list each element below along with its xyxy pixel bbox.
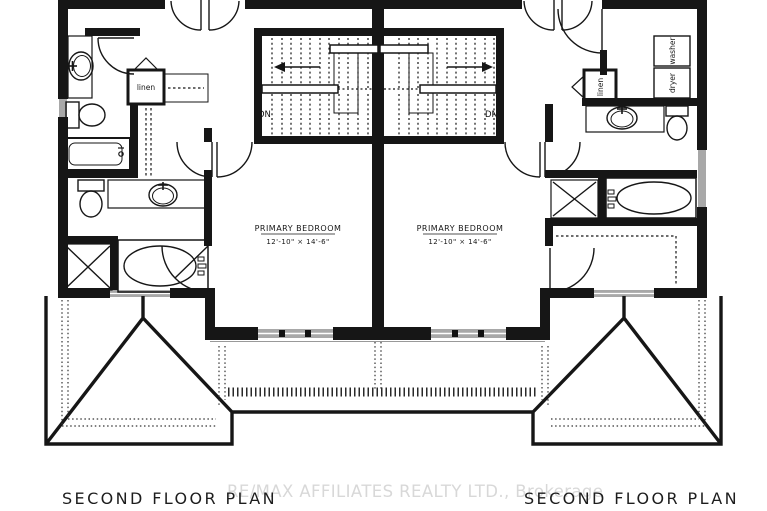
closet-rod-lines (556, 236, 676, 286)
shower-symbol (551, 180, 598, 218)
stairs-left: DN (258, 38, 378, 136)
floor-plan-drawing: DN DN (0, 0, 767, 511)
toilet-symbol (666, 106, 688, 140)
linen-closet (128, 58, 164, 104)
sink-symbol (68, 36, 93, 98)
toilet-symbol (66, 102, 105, 128)
linen-label-right: linen (596, 78, 605, 97)
dryer-label: dryer (668, 72, 677, 93)
bathtub-symbol (64, 138, 130, 170)
room-label-left: PRIMARY BEDROOM (255, 224, 342, 233)
room-dims-left: 12'-10" × 14'-6" (266, 238, 329, 246)
room-label-right: PRIMARY BEDROOM (417, 224, 504, 233)
linen-label-left: linen (137, 83, 156, 92)
toilet-symbol (78, 180, 104, 217)
soaker-tub-symbol (606, 178, 696, 218)
stairs-right: DN (380, 38, 498, 136)
shower-symbol (64, 244, 112, 290)
stairs-down-label-right: DN (485, 110, 498, 120)
plan-title-left: SECOND FLOOR PLAN (62, 489, 277, 508)
soaker-tub-symbol (118, 240, 208, 292)
stairs-down-label-left: DN (258, 110, 271, 120)
washer-label: washer (668, 37, 677, 65)
sink-symbol (108, 180, 206, 208)
sink-symbol (586, 106, 664, 132)
door-arcs (98, 0, 602, 292)
plan-title-right: SECOND FLOOR PLAN (524, 489, 739, 508)
room-dims-right: 12'-10" × 14'-6" (428, 238, 491, 246)
floor-plan-page: DN DN (0, 0, 767, 511)
closet-rod-lines (146, 74, 208, 176)
